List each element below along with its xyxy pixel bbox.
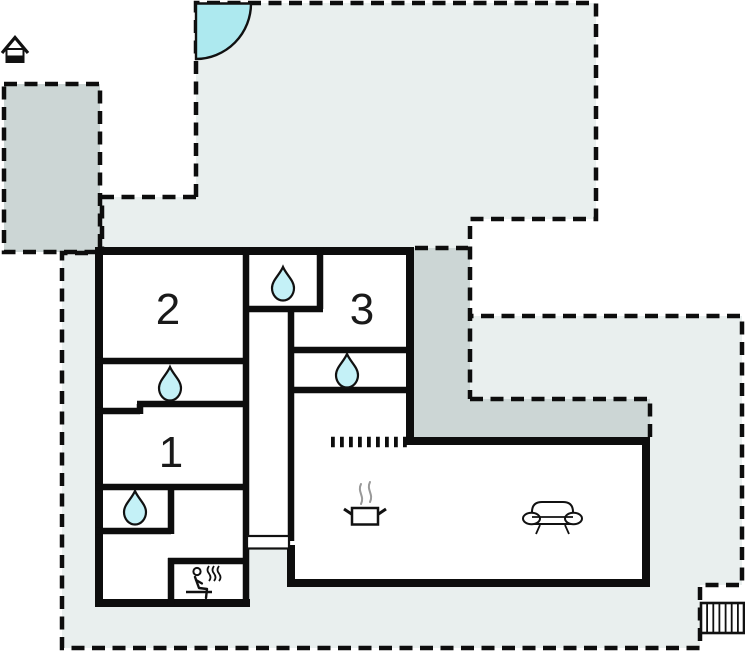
floor-plan-canvas: 2 3 1 xyxy=(0,0,745,652)
terrace-left xyxy=(4,84,100,252)
floor-plan-svg: 2 3 1 xyxy=(0,0,745,652)
room-3-label: 3 xyxy=(350,285,374,334)
room-1-label: 1 xyxy=(159,428,183,477)
steps-grate-icon xyxy=(701,603,744,633)
entrance-door xyxy=(247,536,289,549)
room-2-label: 2 xyxy=(156,285,180,334)
house-icon xyxy=(2,38,28,63)
